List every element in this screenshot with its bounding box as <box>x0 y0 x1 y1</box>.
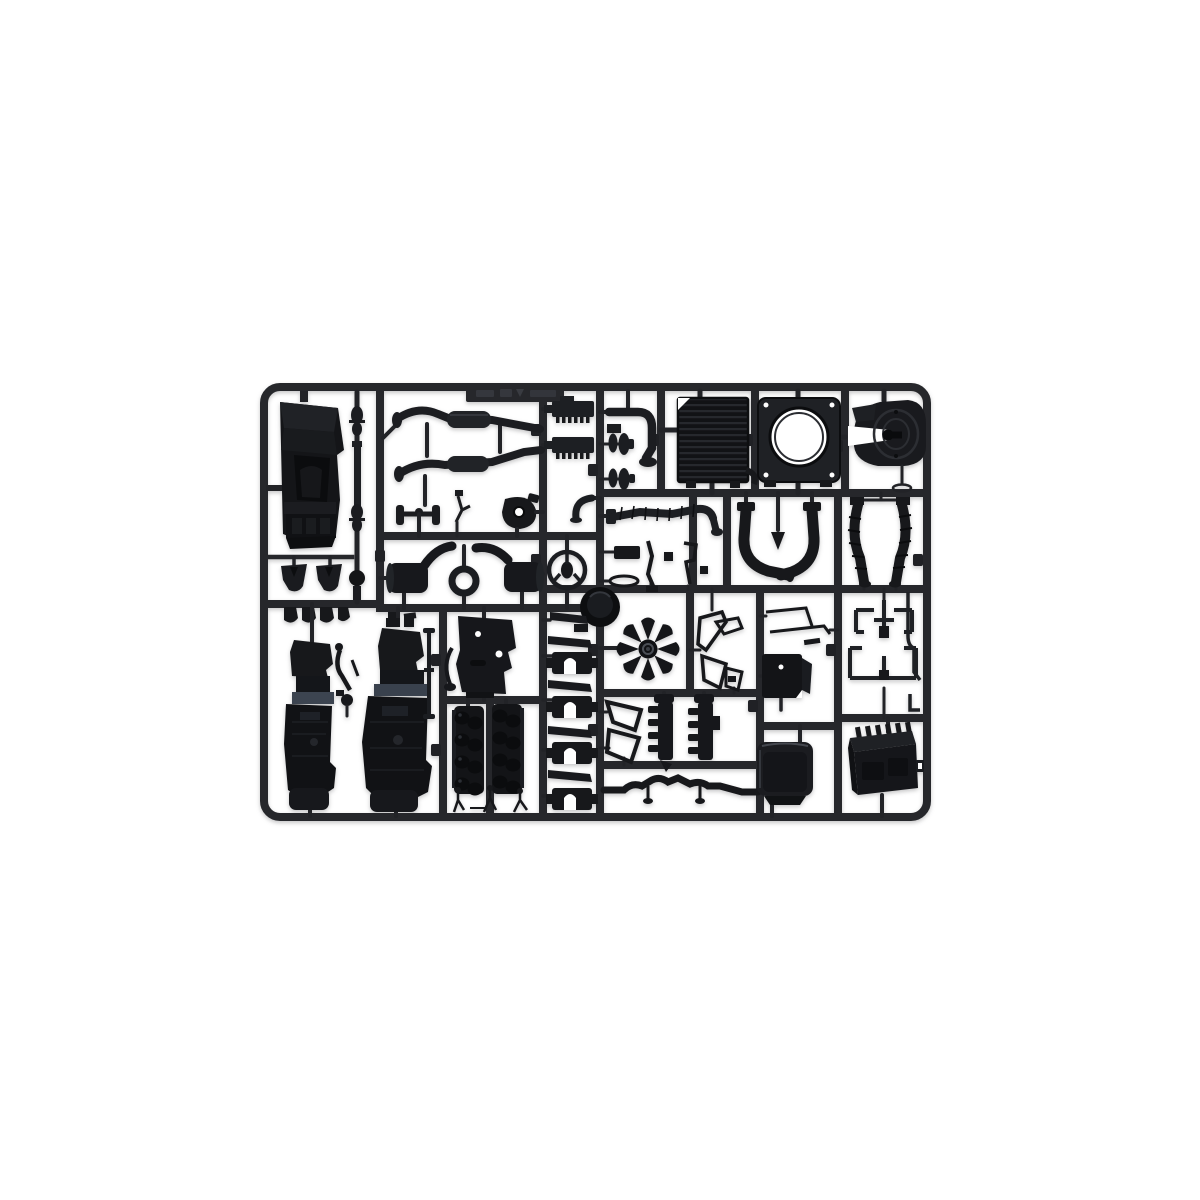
sprue-photo-svg <box>0 0 1200 1200</box>
part-cylinder-bank-1 <box>452 700 484 796</box>
part-cylinder-bank-2 <box>492 700 524 794</box>
part-fan-shroud <box>758 391 845 493</box>
product-photo <box>0 0 1200 1200</box>
molded-tag <box>466 386 564 402</box>
